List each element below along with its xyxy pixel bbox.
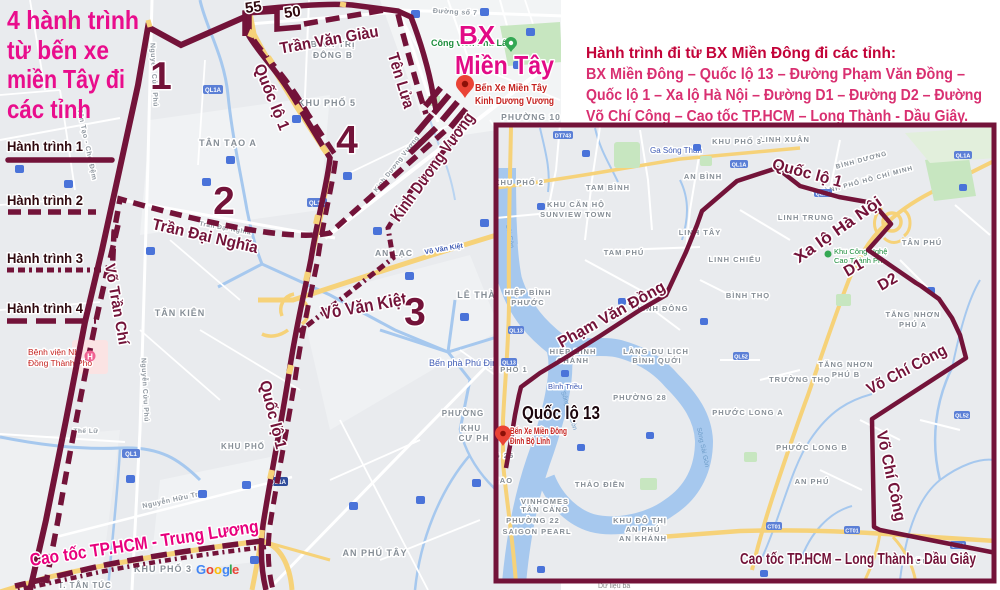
svg-text:SUNVIEW TOWN: SUNVIEW TOWN <box>540 210 612 219</box>
svg-text:55: 55 <box>244 0 263 17</box>
svg-text:PHÚ B: PHÚ B <box>832 370 860 379</box>
svg-text:Hành trình 4: Hành trình 4 <box>7 300 83 316</box>
svg-text:Hành trình đi từ BX Miền Đông: Hành trình đi từ BX Miền Đông đi các tỉn… <box>586 45 896 62</box>
svg-text:TĂNG NHƠN: TĂNG NHƠN <box>886 310 941 319</box>
svg-text:PHƯỚC LONG B: PHƯỚC LONG B <box>776 443 848 452</box>
svg-text:Hành trình 3: Hành trình 3 <box>7 250 83 266</box>
svg-text:H: H <box>87 353 93 362</box>
svg-text:QL13: QL13 <box>509 329 523 335</box>
svg-text:Quốc lộ 1 – Xa lộ Hà Nội – Đườ: Quốc lộ 1 – Xa lộ Hà Nội – Đường D1 – Đư… <box>586 87 982 104</box>
svg-text:TÂN KIÊN: TÂN KIÊN <box>155 307 206 318</box>
svg-text:BÌNH THỌ: BÌNH THỌ <box>726 291 770 300</box>
svg-text:KHU CĂN HỘ: KHU CĂN HỘ <box>547 200 605 209</box>
svg-text:TAM PHÚ: TAM PHÚ <box>604 248 645 257</box>
svg-text:3: 3 <box>404 291 426 334</box>
svg-text:Bến Xe Miền Tây: Bến Xe Miền Tây <box>475 82 547 94</box>
svg-text:LINH TRUNG: LINH TRUNG <box>778 213 834 222</box>
svg-text:Bệnh viện Nhi: Bệnh viện Nhi <box>28 347 81 357</box>
svg-text:1: 1 <box>150 55 172 98</box>
svg-text:KHU: KHU <box>461 424 481 433</box>
svg-text:AN KHÁNH: AN KHÁNH <box>619 534 667 543</box>
svg-text:LINH TÂY: LINH TÂY <box>679 228 722 237</box>
svg-text:PHƯỜNG 28: PHƯỜNG 28 <box>613 393 667 402</box>
svg-text:Hành trình 2: Hành trình 2 <box>7 192 83 208</box>
svg-text:QL1: QL1 <box>125 452 137 458</box>
svg-text:TRƯỜNG THỌ: TRƯỜNG THỌ <box>769 375 831 384</box>
svg-text:BX Miền Đông – Quốc lộ 13 – Đư: BX Miền Đông – Quốc lộ 13 – Đường Phạm V… <box>586 66 965 83</box>
svg-text:CT01: CT01 <box>845 529 858 535</box>
svg-text:e: e <box>232 562 239 577</box>
svg-text:KHU PHỐ 2: KHU PHỐ 2 <box>494 177 544 187</box>
svg-text:Miền Tây: Miền Tây <box>455 50 554 80</box>
svg-text:T. TÂN TÚC: T. TÂN TÚC <box>58 581 112 590</box>
svg-text:AN PHÚ: AN PHÚ <box>626 525 661 534</box>
svg-text:QL52: QL52 <box>955 414 969 420</box>
svg-text:PHƯỜNG 22: PHƯỜNG 22 <box>506 516 560 525</box>
svg-text:KHU PHỐ 3: KHU PHỐ 3 <box>712 136 762 146</box>
svg-text:Đồng Thành Phố: Đồng Thành Phố <box>28 358 92 368</box>
svg-text:LINH CHIẾU: LINH CHIẾU <box>709 254 762 264</box>
svg-text:AN PHÚ TÂY: AN PHÚ TÂY <box>342 547 407 558</box>
svg-text:QL1A: QL1A <box>205 88 222 94</box>
svg-text:LINH XUÂN: LINH XUÂN <box>760 135 810 144</box>
svg-text:Đinh Bộ Lĩnh: Đinh Bộ Lĩnh <box>510 436 550 446</box>
svg-text:PHƯỚC: PHƯỚC <box>511 298 544 307</box>
svg-text:o: o <box>206 562 214 577</box>
svg-text:50: 50 <box>283 3 302 22</box>
svg-text:AN BÌNH: AN BÌNH <box>684 172 722 181</box>
svg-text:SAIGON PEARL: SAIGON PEARL <box>502 527 571 536</box>
svg-text:LÀNG DU LỊCH: LÀNG DU LỊCH <box>623 347 689 356</box>
svg-text:o: o <box>214 562 222 577</box>
svg-text:Hành trình 1: Hành trình 1 <box>7 138 83 154</box>
svg-text:BX: BX <box>459 20 496 50</box>
svg-text:TÂN TẠO A: TÂN TẠO A <box>199 137 257 148</box>
svg-text:PHÚ A: PHÚ A <box>899 320 927 329</box>
svg-text:BÌNH QUỚI: BÌNH QUỚI <box>632 356 681 365</box>
svg-text:PHƯỜNG: PHƯỜNG <box>442 409 485 418</box>
svg-text:Cao tốc TP.HCM – Long Thành -: Cao tốc TP.HCM – Long Thành - Dầu Giây <box>740 551 976 568</box>
svg-text:Bình Triều: Bình Triều <box>548 382 582 391</box>
svg-text:PHƯỜNG 10: PHƯỜNG 10 <box>501 111 561 122</box>
svg-text:THẢO ĐIỀN: THẢO ĐIỀN <box>575 479 625 489</box>
svg-text:KHU PHỐ 3: KHU PHỐ 3 <box>134 563 192 574</box>
svg-text:HIỆP BÌNH: HIỆP BÌNH <box>505 288 552 297</box>
svg-text:4: 4 <box>336 119 358 162</box>
svg-text:miền Tây đi: miền Tây đi <box>7 64 125 94</box>
svg-text:Bến Xe Miền Đông: Bến Xe Miền Đông <box>510 426 567 436</box>
svg-text:CƯ PH: CƯ PH <box>459 434 490 443</box>
svg-text:G: G <box>196 562 206 577</box>
svg-text:KHU PHỐ 5: KHU PHỐ 5 <box>298 97 356 108</box>
svg-text:Khu Công Nghệ: Khu Công Nghệ <box>834 247 887 256</box>
svg-text:Kinh Dương Vương: Kinh Dương Vương <box>475 95 554 107</box>
svg-text:Quốc lộ 13: Quốc lộ 13 <box>522 403 600 423</box>
svg-text:KHU PHỐ: KHU PHỐ <box>221 441 265 451</box>
svg-text:Thế Lữ: Thế Lữ <box>73 427 98 435</box>
svg-text:AN PHÚ: AN PHÚ <box>795 477 830 486</box>
svg-text:2: 2 <box>213 180 235 223</box>
svg-text:QL52: QL52 <box>734 355 748 361</box>
svg-text:QL1A: QL1A <box>732 163 747 169</box>
svg-text:Dữ liệu bả: Dữ liệu bả <box>598 583 630 590</box>
svg-text:DT743: DT743 <box>555 134 572 140</box>
svg-text:KHU ĐÔ THỊ: KHU ĐÔ THỊ <box>613 516 667 525</box>
svg-text:TÂN CẢNG: TÂN CẢNG <box>521 505 569 514</box>
svg-text:PHƯỚC LONG A: PHƯỚC LONG A <box>712 408 783 417</box>
svg-text:TÂN PHÚ: TÂN PHÚ <box>902 238 942 247</box>
svg-text:TAM BÌNH: TAM BÌNH <box>586 183 630 192</box>
svg-text:Võ Chí Công – Cao tốc TP.HCM –: Võ Chí Công – Cao tốc TP.HCM – Long Thàn… <box>586 108 968 125</box>
svg-text:TĂNG NHƠN: TĂNG NHƠN <box>819 360 874 369</box>
svg-text:CT01: CT01 <box>767 525 780 531</box>
svg-text:Bến phà Phú Định: Bến phà Phú Định <box>429 358 502 368</box>
svg-text:các tỉnh: các tỉnh <box>7 94 91 124</box>
svg-text:từ bến xe: từ bến xe <box>7 35 109 65</box>
svg-text:QL1A: QL1A <box>956 154 971 160</box>
svg-text:QL13: QL13 <box>502 361 516 367</box>
svg-text:4 hành trình: 4 hành trình <box>7 5 139 35</box>
